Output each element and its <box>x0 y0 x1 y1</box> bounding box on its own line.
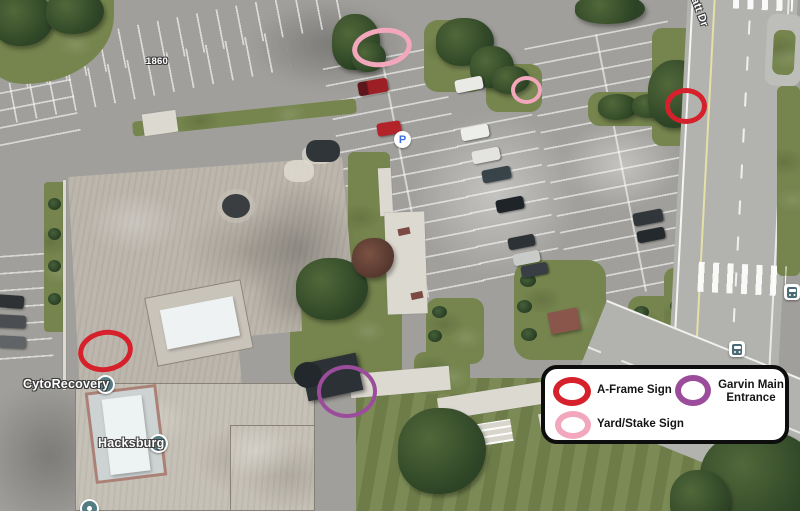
annotated-satellite-map: P 1860 CytoRecovery Hacksburg att Dr A-F… <box>0 0 800 511</box>
yard-stake-sign-circle-top <box>350 24 415 71</box>
legend-label-garvin: Garvin Main Entrance <box>715 379 787 405</box>
a-frame-sign-circle-road <box>665 88 707 124</box>
legend-swatch-a-frame <box>553 377 591 406</box>
legend-swatch-garvin <box>675 375 711 406</box>
legend-box: A-Frame Sign Yard/Stake Sign Garvin Main… <box>541 365 789 444</box>
a-frame-sign-circle-left <box>75 326 136 377</box>
legend-swatch-yard-stake <box>555 411 591 439</box>
legend-label-yard-stake: Yard/Stake Sign <box>597 418 684 431</box>
legend-label-a-frame: A-Frame Sign <box>597 384 672 397</box>
yard-stake-sign-circle-mid <box>511 76 542 104</box>
garvin-main-entrance-circle <box>317 365 377 418</box>
